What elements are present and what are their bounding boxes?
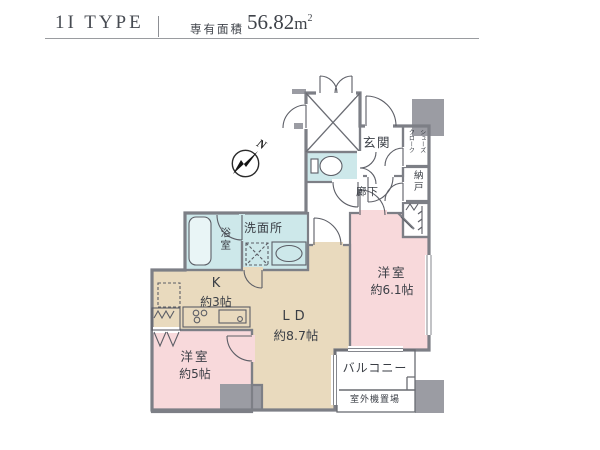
living-dining-label: LD 約8.7帖 (256, 308, 336, 345)
floorplan-page: 1I TYPE 専有面積 56.82m2 (0, 0, 600, 450)
wall-stub-upper (292, 89, 306, 94)
shoe-closet-label: シューズ クローク (405, 129, 428, 167)
living-entry-door (314, 218, 341, 245)
toilet-tank (311, 159, 318, 173)
washroom-label: 洗面所 (244, 220, 308, 237)
kitchen-label: K 約3帖 (176, 275, 256, 311)
hanger-pole-right (418, 206, 422, 234)
compass (232, 150, 258, 176)
gray-block-bottom-right (415, 380, 444, 413)
hallway-label: 廊下 (356, 185, 388, 200)
bathtub (189, 217, 211, 265)
outdoor-unit-label: 室外機置場 (337, 394, 413, 407)
storage-label: 納戸 (410, 170, 424, 200)
balcony-label: バルコニー (337, 360, 413, 377)
toilet-door (333, 182, 358, 207)
gray-block-bottom-left (220, 384, 262, 410)
hanger-mark-right (406, 204, 418, 210)
entrance-label: 玄関 (363, 134, 403, 152)
bedroom-left-label: 洋室 約5帖 (155, 348, 235, 384)
entrance-door (366, 96, 396, 126)
bedroom-right-label: 洋室 約6.1帖 (352, 264, 432, 300)
elevator-shaft-cross (306, 93, 360, 152)
toilet-bowl (320, 157, 342, 176)
bathroom-label: 浴室 (217, 227, 232, 267)
